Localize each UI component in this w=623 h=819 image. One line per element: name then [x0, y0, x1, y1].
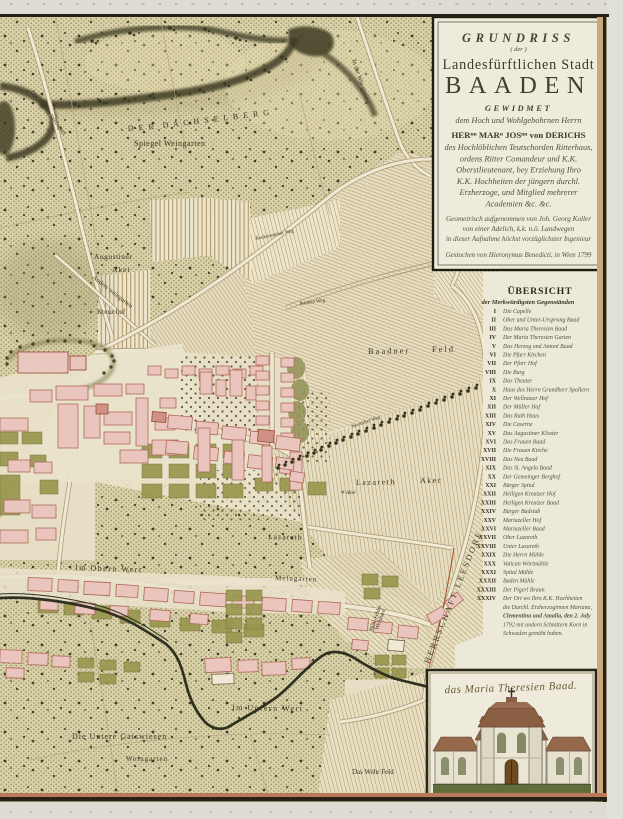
svg-text:Die Pfarr Kirchen: Die Pfarr Kirchen	[502, 352, 546, 359]
svg-text:XXVII: XXVII	[479, 535, 497, 541]
svg-text:GRUNDRISS: GRUNDRISS	[462, 31, 575, 45]
svg-text:Im Untern Wert: Im Untern Wert	[232, 703, 303, 713]
svg-text:II: II	[491, 318, 496, 324]
svg-text:Das Frauen Baad: Das Frauen Baad	[502, 440, 545, 446]
svg-text:ordens Ritter Comandeur und K.: ordens Ritter Comandeur und K.K.	[460, 154, 577, 163]
svg-text:dem Hoch und Wohlgebohrnen Her: dem Hoch und Wohlgebohrnen Herrn	[455, 116, 581, 125]
svg-text:XII: XII	[487, 405, 496, 411]
svg-text:Die Herrn Mühle: Die Herrn Mühle	[502, 553, 544, 559]
svg-text:Bürger Badstub: Bürger Badstub	[503, 509, 540, 515]
svg-text:Baden Mühle: Baden Mühle	[503, 579, 535, 585]
svg-text:Heiligen Kreutzer Hof: Heiligen Kreutzer Hof	[502, 491, 557, 498]
svg-text:XXVI: XXVI	[481, 527, 497, 533]
svg-text:Der Wellnauer Hof: Der Wellnauer Hof	[502, 395, 549, 402]
svg-text:Geometrisch aufgenommen von Jo: Geometrisch aufgenommen von Joh. Georg K…	[446, 215, 591, 223]
svg-text:✳ Aker: ✳ Aker	[340, 489, 357, 496]
svg-text:Schwaden gemäht haben.: Schwaden gemäht haben.	[503, 631, 563, 637]
svg-text:III: III	[489, 326, 497, 332]
svg-text:XXVIII: XXVIII	[477, 544, 497, 550]
svg-text:ÜBERSICHT: ÜBERSICHT	[508, 284, 573, 297]
svg-text:Heiligen Kreutzer Baad: Heiligen Kreutzer Baad	[502, 500, 559, 506]
svg-text:XIX: XIX	[485, 466, 496, 472]
svg-text:Das Herzog und Antoni Baad: Das Herzog und Antoni Baad	[502, 344, 573, 350]
svg-text:( der ): ( der )	[510, 46, 526, 53]
svg-text:Lazareth: Lazareth	[268, 532, 302, 542]
svg-text:Die Burg: Die Burg	[502, 370, 525, 376]
svg-text:XXI: XXI	[485, 483, 496, 489]
svg-text:Das Maria Theresien Baad: Das Maria Theresien Baad	[502, 326, 567, 332]
svg-text:Weingarten: Weingarten	[126, 755, 168, 763]
svg-text:Erzherzoge, und Mitglied mehre: Erzherzoge, und Mitglied mehrerer	[458, 188, 578, 197]
svg-text:Der Gemeinger Berghof: Der Gemeinger Berghof	[502, 473, 561, 480]
svg-text:Kreuz hof: Kreuz hof	[97, 308, 126, 316]
svg-text:XXX: XXX	[483, 561, 496, 567]
svg-text:Das Theater: Das Theater	[502, 379, 533, 385]
svg-text:Feld: Feld	[432, 344, 455, 354]
svg-text:BAADEN: BAADEN	[445, 72, 592, 99]
svg-text:XIII: XIII	[485, 413, 497, 419]
svg-text:Der Pfarr Hof: Der Pfarr Hof	[502, 360, 538, 367]
svg-text:Das Wehr Feld: Das Wehr Feld	[352, 768, 394, 776]
svg-text:Unter Lazareth: Unter Lazareth	[503, 544, 539, 550]
svg-text:Academien &c. &c.: Academien &c. &c.	[484, 200, 551, 209]
svg-text:XXXIV: XXXIV	[477, 596, 497, 602]
svg-text:Der Pigerl Braun: Der Pigerl Braun	[502, 587, 545, 593]
svg-text:XXIV: XXIV	[481, 509, 497, 515]
svg-text:Bürger Spital: Bürger Spital	[503, 483, 535, 489]
svg-text:Mariazeller Baad: Mariazeller Baad	[502, 527, 545, 533]
svg-text:Ober Lazareth: Ober Lazareth	[503, 535, 537, 541]
svg-text:XXV: XXV	[483, 518, 496, 524]
svg-text:Die Frauen Kirche: Die Frauen Kirche	[502, 448, 548, 454]
svg-text:Die Capelle: Die Capelle	[502, 309, 532, 315]
svg-text:XIV: XIV	[485, 422, 496, 428]
svg-text:VII: VII	[487, 361, 496, 367]
svg-text:von einer Adelich, k.k. n.ö. L: von einer Adelich, k.k. n.ö. Landwegen	[463, 225, 575, 233]
svg-text:Das Neu Baad: Das Neu Baad	[502, 457, 537, 463]
svg-text:Die Untere Gaiswiesen: Die Untere Gaiswiesen	[72, 732, 167, 741]
svg-text:Der Maria Theresien Garten: Der Maria Theresien Garten	[502, 335, 571, 341]
svg-text:Das St. Angela Baad: Das St. Angela Baad	[502, 466, 552, 472]
svg-text:Mariazeller Hof: Mariazeller Hof	[502, 517, 542, 524]
svg-text:Oberstlieutenant, bey Erziehun: Oberstlieutenant, bey Erziehung Ihro	[456, 166, 581, 175]
svg-text:Der Müller Hof: Der Müller Hof	[502, 404, 541, 411]
svg-text:Die Caserne: Die Caserne	[502, 422, 533, 428]
svg-text:XXXII: XXXII	[479, 579, 497, 585]
svg-text:Das Rath Haus: Das Rath Haus	[502, 413, 540, 419]
svg-text:VI: VI	[490, 353, 497, 359]
svg-text:XVI: XVI	[485, 440, 496, 446]
svg-text:XXXIII: XXXIII	[477, 587, 497, 593]
svg-text:XV: XV	[488, 431, 497, 437]
svg-text:Augustiner: Augustiner	[94, 252, 132, 261]
svg-text:IX: IX	[490, 379, 497, 385]
svg-text:Aker: Aker	[112, 265, 131, 274]
svg-text:Vatican Wörtmühle: Vatican Wörtmühle	[503, 561, 549, 567]
svg-text:XVIII: XVIII	[481, 457, 497, 463]
svg-text:Baadner: Baadner	[368, 345, 410, 356]
svg-text:XXXI: XXXI	[481, 570, 497, 576]
svg-text:XVII: XVII	[483, 448, 497, 454]
svg-text:K.K. Hochheiten der jüngern du: K.K. Hochheiten der jüngern durchl.	[456, 177, 580, 186]
svg-text:D E R: D E R	[128, 122, 156, 133]
svg-text:Spiegel Weingarten: Spiegel Weingarten	[134, 139, 206, 148]
svg-text:Landesfürftlichen Stadt: Landesfürftlichen Stadt	[443, 57, 595, 73]
svg-text:VIII: VIII	[485, 370, 497, 376]
svg-text:1792 mit andern Schnittern Kor: 1792 mit andern Schnittern Korn in	[503, 622, 587, 628]
svg-text:Aker: Aker	[420, 476, 442, 485]
svg-text:XXII: XXII	[483, 492, 497, 498]
svg-text:Haus des Herrn Grundherr Spall: Haus des Herrn Grundherr Spallern	[502, 387, 589, 393]
svg-text:Das Augustiner Kloster: Das Augustiner Kloster	[502, 431, 559, 437]
svg-text:Der Ort wo Ihro K.K. Hochheite: Der Ort wo Ihro K.K. Hochheiten	[502, 596, 583, 602]
svg-text:XXIX: XXIX	[481, 553, 497, 559]
svg-text:Lazareth: Lazareth	[356, 477, 396, 487]
svg-text:in dieser Aufnahme höchst vorz: in dieser Aufnahme höchst vorzüglichster…	[446, 235, 591, 243]
svg-text:des Hochlöblichen Teutschorden: des Hochlöblichen Teutschorden Ritterhau…	[444, 143, 592, 152]
svg-text:Melugarten: Melugarten	[275, 574, 318, 583]
svg-text:Clementina und Amalia, den 2.: Clementina und Amalia, den 2. July	[503, 614, 591, 620]
svg-text:GEWIDMET: GEWIDMET	[485, 103, 552, 113]
svg-text:der Merkwürdigsten Gegenstände: der Merkwürdigsten Gegenständen	[482, 299, 575, 306]
svg-text:Ober und Unter-Ursprung Baad: Ober und Unter-Ursprung Baad	[503, 318, 579, 324]
svg-text:IV: IV	[490, 335, 497, 341]
svg-text:Spital Mühle: Spital Mühle	[503, 570, 534, 576]
svg-text:XX: XX	[488, 474, 497, 480]
svg-text:HERⁿⁿ MARⁿ JOSⁿⁿ von DERICHS: HERⁿⁿ MARⁿ JOSⁿⁿ von DERICHS	[451, 130, 585, 140]
svg-text:Gestochen von Hieronymus Bened: Gestochen von Hieronymus Benedicti, in W…	[446, 251, 592, 259]
svg-text:XI: XI	[490, 396, 497, 402]
svg-text:die Durchl. Erzherzoginnen Mar: die Durchl. Erzherzoginnen Mariana,	[503, 605, 592, 611]
svg-text:XXIII: XXIII	[481, 500, 497, 506]
